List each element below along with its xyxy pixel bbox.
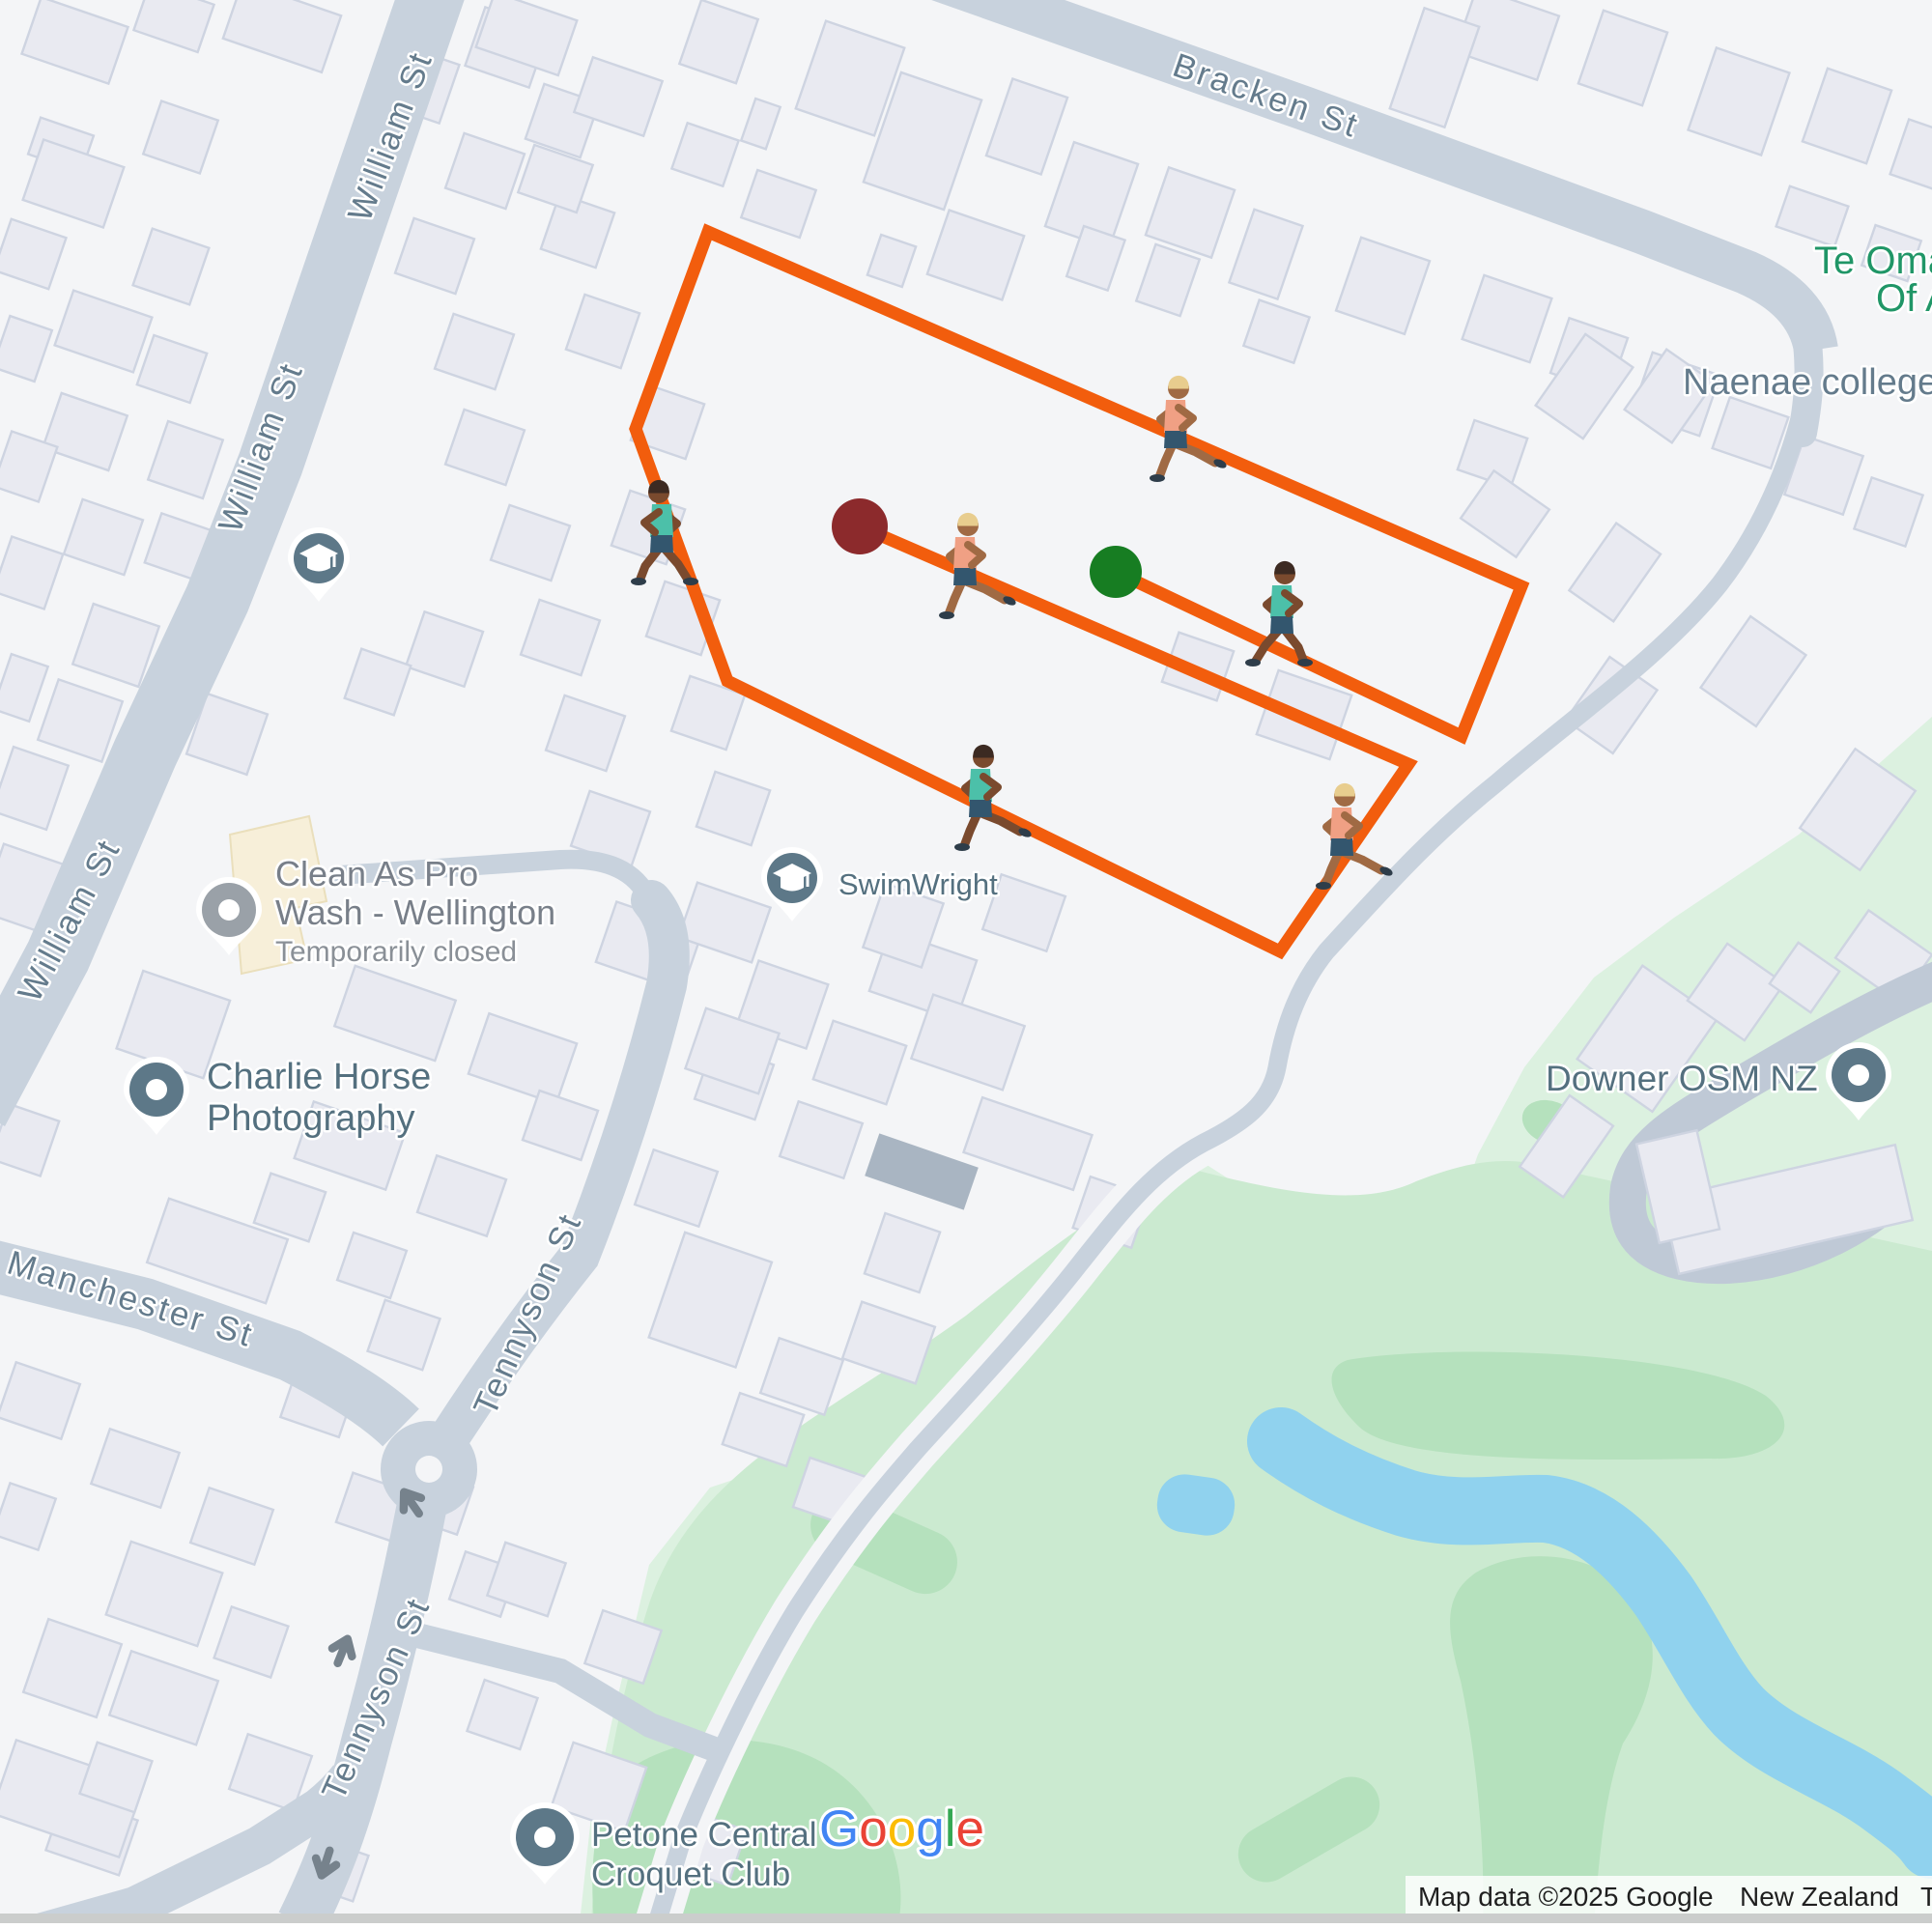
- svg-text:Temporarily closed: Temporarily closed: [275, 936, 517, 968]
- svg-text:SwimWright: SwimWright: [838, 867, 998, 901]
- svg-text:Naenae college: Naenae college: [1683, 362, 1932, 403]
- svg-text:Charlie Horse: Charlie Horse: [207, 1057, 431, 1097]
- svg-text:Downer OSM NZ: Downer OSM NZ: [1546, 1059, 1818, 1098]
- svg-text:Clean As Pro: Clean As Pro: [275, 854, 478, 893]
- svg-text:Of A: Of A: [1876, 277, 1932, 320]
- svg-text:Petone Central: Petone Central: [591, 1816, 816, 1854]
- svg-text:Croquet Club: Croquet Club: [591, 1856, 790, 1893]
- svg-text:Te: Te: [1920, 1882, 1932, 1912]
- svg-text:Map data ©2025 Google: Map data ©2025 Google: [1418, 1882, 1714, 1912]
- svg-text:Te Oma: Te Oma: [1814, 240, 1932, 282]
- svg-text:Photography: Photography: [207, 1098, 415, 1139]
- svg-text:Wash - Wellington: Wash - Wellington: [275, 893, 555, 932]
- svg-text:Google: Google: [819, 1800, 984, 1857]
- svg-text:New Zealand: New Zealand: [1740, 1882, 1899, 1912]
